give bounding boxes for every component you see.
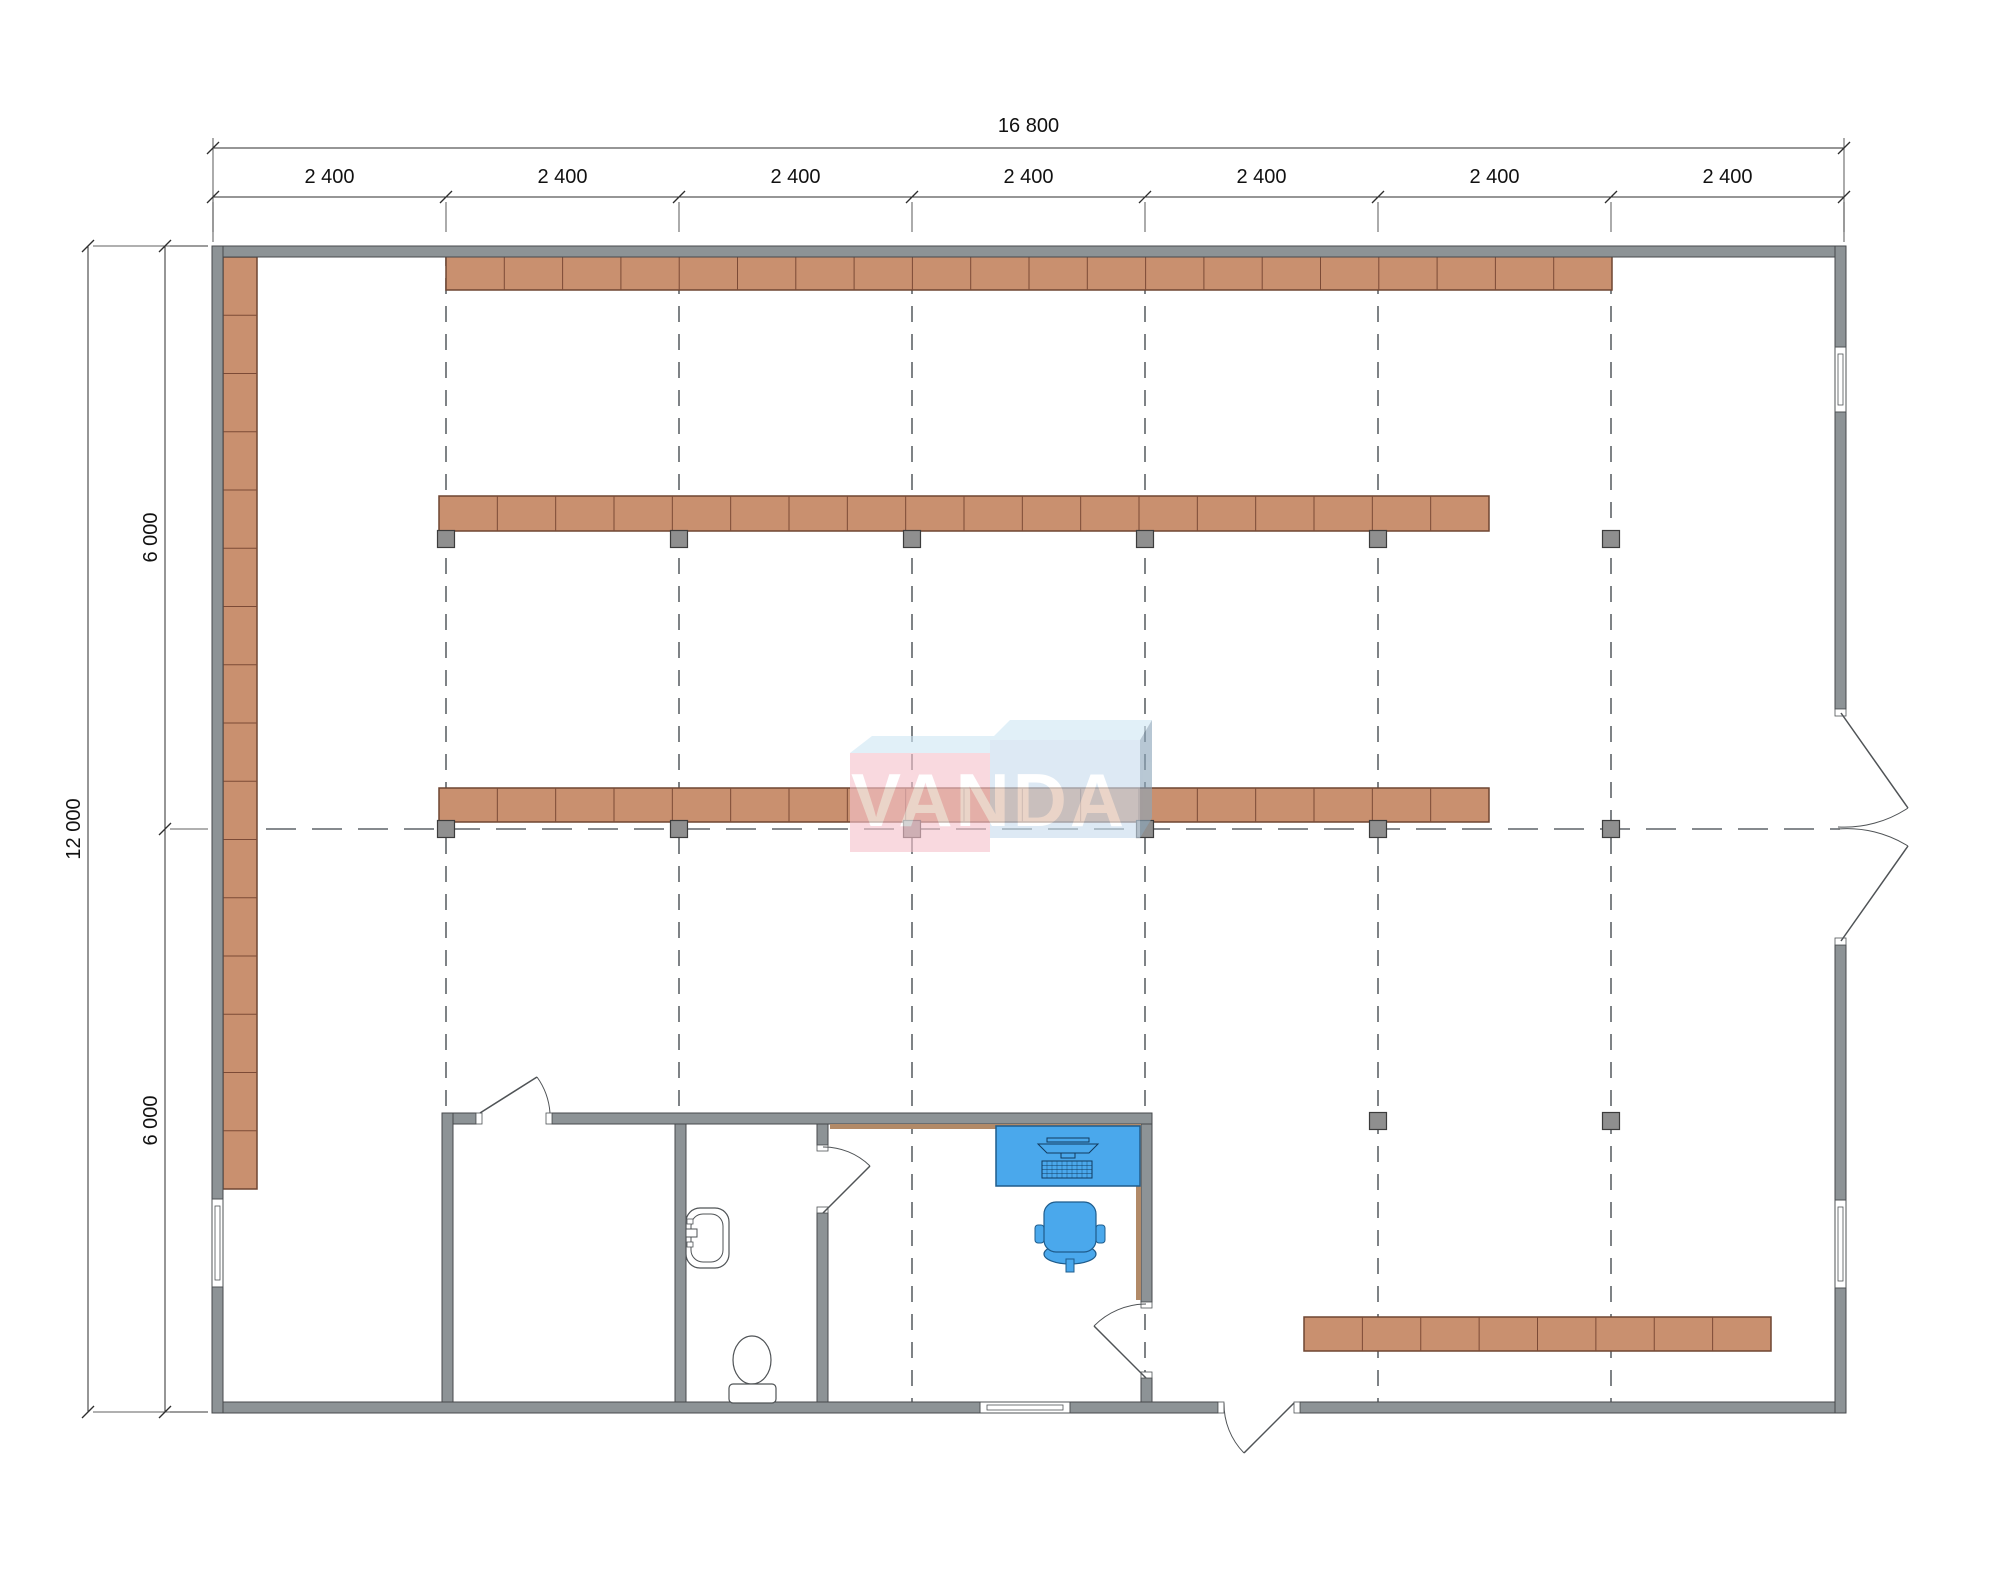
- bathroom-door-swing-arc: [823, 1147, 870, 1166]
- floor-plan-page: VANDA 16 8002 4002 4002 4002 4002 4002 4…: [0, 0, 2000, 1574]
- wall-segment: [675, 1124, 686, 1402]
- door-jamb-cap: [1141, 1302, 1152, 1308]
- sink-handle: [687, 1219, 693, 1224]
- sink-faucet: [686, 1229, 697, 1237]
- column: [438, 531, 455, 548]
- logo-box-right-top: [990, 720, 1152, 740]
- double-door-bottom-leaf: [1841, 846, 1908, 941]
- dim-bay-width-label: 2 400: [770, 166, 820, 188]
- wall-segment: [1835, 1288, 1846, 1413]
- door-jamb-cap: [1835, 709, 1846, 716]
- wall-segment: [1141, 1378, 1152, 1402]
- door-jamb-cap: [546, 1113, 552, 1124]
- wall-segment: [1835, 246, 1846, 347]
- wall-segment: [1070, 1402, 1218, 1413]
- bathroom-fixtures: [686, 1208, 776, 1403]
- column: [904, 531, 921, 548]
- dim-bay-width-label: 2 400: [1702, 166, 1752, 188]
- wall-segment: [212, 1402, 980, 1413]
- dim-bay-width-label: 2 400: [537, 166, 587, 188]
- dim-bay-width-label: 2 400: [1469, 166, 1519, 188]
- column: [1370, 531, 1387, 548]
- column: [1370, 1113, 1387, 1130]
- double-door-top-leaf: [1841, 713, 1908, 808]
- column: [438, 821, 455, 838]
- toilet-bowl: [733, 1336, 771, 1384]
- office-furniture: [996, 1126, 1140, 1272]
- vanda-watermark-logo: VANDA: [850, 720, 1152, 852]
- chair-armrest-left: [1035, 1225, 1044, 1243]
- wall-segment: [1141, 1124, 1152, 1302]
- wall-segment: [212, 246, 223, 1199]
- dim-bay-width-label: 2 400: [1003, 166, 1053, 188]
- window-glazing: [1838, 1207, 1843, 1281]
- door-jamb-cap: [476, 1113, 482, 1124]
- column: [671, 821, 688, 838]
- wall-segment: [817, 1124, 828, 1145]
- wall-segment: [552, 1113, 1152, 1124]
- sink-handle: [687, 1242, 693, 1247]
- window-glazing: [987, 1405, 1063, 1410]
- window-glazing: [215, 1206, 220, 1280]
- column: [671, 531, 688, 548]
- dim-bay-width-label: 2 400: [304, 166, 354, 188]
- wall-segment: [1835, 412, 1846, 709]
- wall-segment: [442, 1113, 453, 1402]
- double-door-top-swing-arc: [1838, 808, 1908, 827]
- dim-total-height-label: 12 000: [63, 798, 85, 859]
- entry-door-leaf: [1244, 1403, 1294, 1453]
- office-door-leaf: [1094, 1326, 1146, 1378]
- column: [1137, 531, 1154, 548]
- chair-armrest-right: [1096, 1225, 1105, 1243]
- entry-door-swing-arc: [1224, 1403, 1244, 1453]
- wall-segment: [212, 1287, 223, 1413]
- wall-segment: [1300, 1402, 1846, 1413]
- sink-bowl: [691, 1214, 723, 1262]
- vanda-logo-text: VANDA: [851, 758, 1127, 842]
- toilet-tank: [729, 1384, 776, 1403]
- office-door-swing-arc: [1094, 1304, 1146, 1326]
- double-door-bottom-swing-arc: [1838, 829, 1908, 846]
- door-jamb-cap: [1835, 938, 1846, 945]
- window-glazing: [1838, 354, 1843, 405]
- floor-plan-canvas: VANDA 16 8002 4002 4002 4002 4002 4002 4…: [0, 0, 2000, 1574]
- dim-bay-height-label: 6 000: [140, 1095, 162, 1145]
- chair-seat: [1044, 1202, 1096, 1252]
- wall-segment: [817, 1213, 828, 1402]
- column: [1370, 821, 1387, 838]
- door-jamb-cap: [1218, 1402, 1224, 1413]
- dim-bay-width-label: 2 400: [1236, 166, 1286, 188]
- column: [1603, 531, 1620, 548]
- dim-bay-height-label: 6 000: [140, 512, 162, 562]
- column: [1603, 1113, 1620, 1130]
- logo-box-right-side: [1140, 720, 1152, 838]
- logo-box-left-top: [850, 736, 1012, 753]
- desk: [996, 1126, 1140, 1186]
- wall-segment: [1835, 945, 1846, 1200]
- storage-door-swing-arc: [537, 1077, 550, 1113]
- door-jamb-cap: [817, 1145, 828, 1151]
- dim-total-width-label: 16 800: [998, 115, 1059, 137]
- chair-stem: [1066, 1259, 1074, 1272]
- bathroom-door-leaf: [823, 1166, 870, 1213]
- storage-door-leaf: [480, 1077, 537, 1113]
- door-jamb-cap: [1294, 1402, 1300, 1413]
- column: [1603, 821, 1620, 838]
- wall-segment: [212, 246, 1846, 257]
